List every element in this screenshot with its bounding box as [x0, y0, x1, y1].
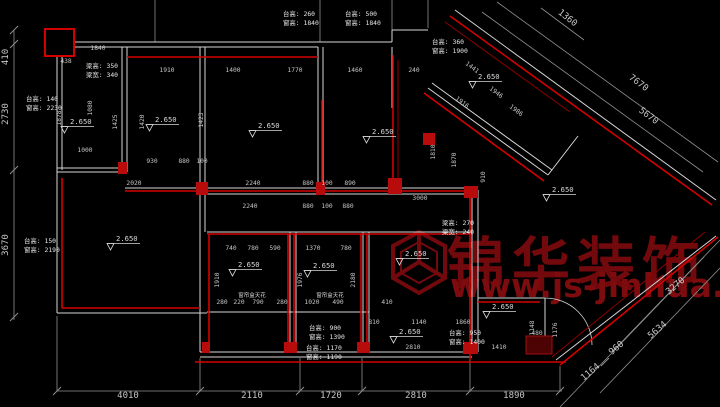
dimension-label: 1976	[297, 272, 304, 287]
annotation-label: 台高: 900	[309, 323, 341, 332]
level-value: 2.650	[155, 115, 177, 124]
red-fixture-box	[526, 336, 552, 354]
level-value: 2.650	[70, 117, 92, 126]
level-value: 2.650	[116, 234, 138, 243]
dimension-label: 1400	[225, 67, 240, 74]
dimension-label: 100	[321, 180, 333, 187]
level-triangle-icon	[543, 195, 550, 202]
dimension-label: 1360	[556, 8, 579, 29]
level-marker: 2.650	[469, 72, 502, 88]
dimension-label: 窗帘盒天花	[316, 291, 344, 299]
annotation-label: 台高: 950	[449, 328, 481, 337]
dimension-label: 1720	[320, 391, 342, 401]
dimension-label: 1986	[508, 103, 524, 118]
level-triangle-icon	[469, 82, 476, 89]
dimension-label: 1176	[552, 322, 559, 337]
dimension-label: 5670	[637, 106, 660, 127]
annotation-label: 台高: 360	[432, 37, 464, 46]
level-marker: 2.650	[229, 260, 262, 276]
dimension-label: 410	[1, 49, 11, 65]
dimension-label: 1423	[198, 112, 205, 127]
level-marker: 2.650	[146, 115, 179, 131]
annotation-label: 台高: 150	[24, 236, 56, 245]
dimension-label: 100	[196, 158, 208, 165]
dimension-label: 1840	[90, 45, 105, 52]
level-marker: 2.650	[249, 121, 282, 137]
red-column-box	[45, 29, 74, 56]
dimension-label: 910	[480, 171, 487, 183]
dimension-label: 100	[321, 203, 333, 210]
cad-floor-plan: 锦华装饰 www.js-jinhua.com	[0, 0, 720, 407]
dimension-label: 890	[344, 180, 356, 187]
level-triangle-icon	[146, 125, 153, 132]
dimension-label: 4010	[117, 391, 139, 401]
dimension-label: 1860	[455, 319, 470, 326]
level-triangle-icon	[390, 337, 397, 344]
level-marker: 2.650	[363, 127, 396, 143]
level-value: 2.650	[405, 249, 427, 258]
dimension-label: 3000	[412, 195, 427, 202]
annotation-label: 窗高: 2190	[24, 245, 60, 254]
dimension-label: 1910	[214, 272, 221, 287]
dimension-label: 3270	[664, 276, 687, 298]
annotation-label: 台高: 140	[26, 94, 58, 103]
level-triangle-icon	[363, 137, 370, 144]
annotation-label: 梁高: 270	[442, 218, 474, 227]
level-marker: 2.650	[61, 117, 94, 133]
dimension-label: 1425	[112, 114, 119, 129]
level-value: 2.650	[478, 72, 500, 81]
level-triangle-icon	[304, 271, 311, 278]
dimension-label: 2810	[405, 344, 420, 351]
dimension-label: 2110	[241, 391, 263, 401]
level-marker: 2.650	[304, 261, 337, 277]
annotation-label: 窗高: 1840	[345, 18, 381, 27]
dimension-label: 780	[340, 245, 352, 252]
dimension-label: 1140	[411, 319, 426, 326]
level-triangle-icon	[483, 312, 490, 319]
dimension-label: 1420	[139, 114, 146, 129]
dimension-label: 1460	[347, 67, 362, 74]
dimension-label: 410	[381, 299, 393, 306]
dimension-label: 窗帘盒天花	[238, 291, 266, 299]
dimension-label: 1410	[491, 344, 506, 351]
level-triangle-icon	[107, 244, 114, 251]
dimension-label: 880	[302, 203, 314, 210]
dimension-label: 790	[252, 299, 264, 306]
dimension-label: 1164	[579, 362, 602, 384]
dimension-label: 590	[269, 245, 281, 252]
dimension-label: 5634	[646, 320, 669, 342]
floor-plan-canvas: 4102730367040102110172028101890136076705…	[0, 0, 720, 407]
level-triangle-icon	[396, 259, 403, 266]
level-marker: 2.650	[483, 302, 516, 318]
dimension-label: 1000	[77, 147, 92, 154]
dimension-label: 438	[60, 58, 72, 65]
annotation-label: 窗高: 2230	[26, 103, 62, 112]
dimension-label: 1080	[87, 100, 94, 115]
dimension-label: 880	[178, 158, 190, 165]
level-marker: 2.650	[396, 249, 429, 265]
dimension-label: 3670	[1, 234, 11, 256]
dimension-label: 880	[302, 180, 314, 187]
dimension-label: 810	[368, 319, 380, 326]
level-marker: 2.650	[107, 234, 140, 250]
annotation-label: 窗高: 1390	[309, 332, 345, 341]
level-marker: 2.650	[390, 327, 423, 343]
annotation-label: 窗高: 1900	[432, 46, 468, 55]
dimension-label: 1878	[56, 110, 63, 125]
dimension-label: 1148	[529, 320, 536, 335]
dimension-label: 1770	[287, 67, 302, 74]
dimension-label: 2810	[405, 391, 427, 401]
annotation-label: 台高: 260	[283, 9, 315, 18]
dimension-label: 280	[276, 299, 288, 306]
dimension-label: 1946	[488, 85, 504, 100]
dimension-label: 2240	[242, 203, 257, 210]
dimension-label: 1810	[430, 144, 437, 159]
dimension-label: 1020	[304, 299, 319, 306]
level-value: 2.650	[399, 327, 421, 336]
dimension-label: 2240	[245, 180, 260, 187]
dimension-label: 220	[233, 299, 245, 306]
level-marker: 2.650	[543, 185, 576, 201]
level-value: 2.650	[258, 121, 280, 130]
dimension-label: 490	[332, 299, 344, 306]
annotation-label: 台高: 1170	[306, 343, 342, 352]
level-value: 2.650	[552, 185, 574, 194]
dimension-label: 1370	[305, 245, 320, 252]
dimension-label: 1870	[451, 152, 458, 167]
dimension-label: 2730	[1, 103, 11, 125]
level-triangle-icon	[249, 131, 256, 138]
column-blocks	[118, 133, 552, 354]
annotation-label: 窗高: 1400	[449, 337, 485, 346]
annotation-label: 梁高: 350	[86, 61, 118, 70]
dimension-label: 1910	[159, 67, 174, 74]
level-value: 2.650	[313, 261, 335, 270]
level-value: 2.650	[492, 302, 514, 311]
dimension-label: 780	[247, 245, 259, 252]
dimension-label: 7670	[627, 73, 650, 94]
dimension-label: 880	[342, 203, 354, 210]
annotation-label: 窗高: 1190	[306, 352, 342, 361]
dimension-label: 740	[225, 245, 237, 252]
annotation-label: 窗高: 1840	[283, 18, 319, 27]
dimension-label: 1890	[503, 391, 525, 401]
level-triangle-icon	[229, 270, 236, 277]
annotation-label: 台高: 500	[345, 9, 377, 18]
dimension-label: 2020	[126, 180, 141, 187]
annotation-label: 梁宽: 340	[86, 70, 118, 79]
dimension-label: 2180	[350, 272, 357, 287]
dimension-label: 240	[408, 67, 420, 74]
level-value: 2.650	[238, 260, 260, 269]
annotation-label: 梁宽: 240	[442, 227, 474, 236]
level-value: 2.650	[372, 127, 394, 136]
dimension-label: 280	[216, 299, 228, 306]
dimension-label: 930	[146, 158, 158, 165]
